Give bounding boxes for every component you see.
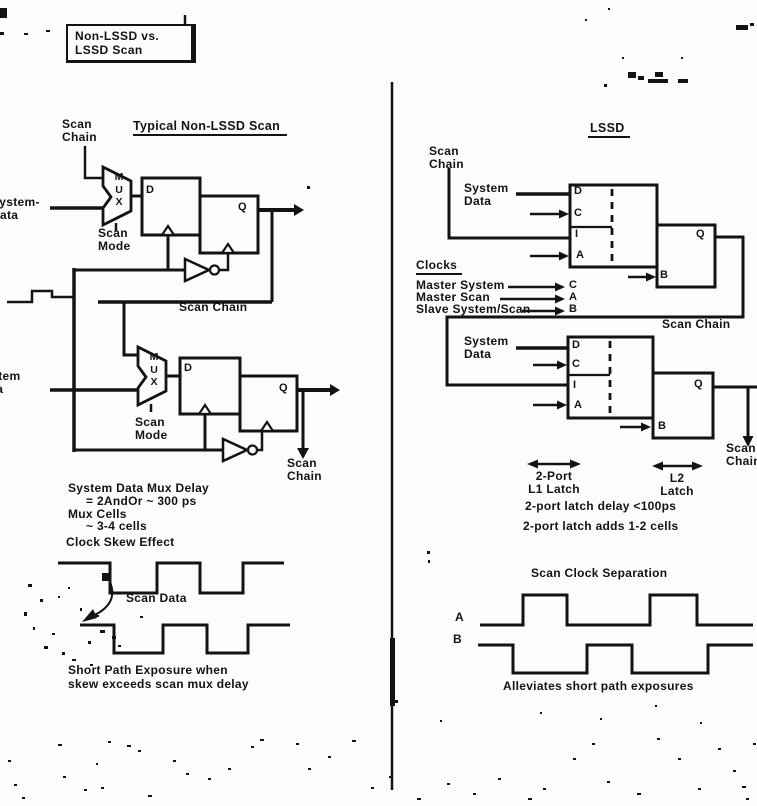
latch4-q-port: Q bbox=[694, 378, 703, 391]
clock-row-master-system-port: C bbox=[569, 279, 577, 292]
left-diagram-linework bbox=[7, 15, 340, 653]
right-diagram-linework bbox=[447, 168, 757, 673]
note-latch-delay: 2-port latch delay <100ps bbox=[525, 500, 676, 513]
scan-data-label: Scan Data bbox=[126, 592, 187, 605]
l1-latch-measure-label: 2-PortL1 Latch bbox=[517, 470, 591, 495]
l2-latch-measure-label: L2Latch bbox=[648, 472, 706, 497]
latch3-c-port: C bbox=[572, 358, 580, 371]
note-mux-delay-2: = 2AndOr ~ 300 ps bbox=[86, 495, 196, 508]
left-system-data-bottom-label: SystemData bbox=[0, 370, 21, 395]
clock-row-master-scan-port: A bbox=[569, 291, 577, 304]
wave-a-label: A bbox=[455, 611, 464, 624]
right-scan-chain-out-label: ScanChain bbox=[726, 442, 757, 467]
latch3-a-port: A bbox=[574, 399, 582, 412]
clock-row-slave-port: B bbox=[569, 303, 577, 316]
alleviates-note: Alleviates short path exposures bbox=[503, 680, 694, 693]
latch3-i-port: I bbox=[573, 379, 576, 392]
title-box: Non-LSSD vs.LSSD Scan bbox=[66, 24, 196, 63]
left-scan-mode-top-label: ScanMode bbox=[98, 227, 131, 252]
ff-top-q-port: Q bbox=[238, 201, 247, 214]
left-scan-chain-mid-label: Scan Chain bbox=[179, 301, 247, 314]
note-latch-cells: 2-port latch adds 1-2 cells bbox=[523, 520, 678, 533]
latch3-d-port: D bbox=[572, 339, 580, 352]
page-divider-line bbox=[390, 82, 395, 790]
left-scan-chain-top-label: ScanChain bbox=[62, 118, 97, 143]
clock-row-slave: Slave System/Scan bbox=[416, 303, 531, 316]
clocks-heading: Clocks bbox=[416, 259, 462, 275]
latch1-c-port: C bbox=[574, 207, 582, 220]
latch1-i-port: I bbox=[575, 228, 578, 241]
latch2-q-port: Q bbox=[696, 228, 705, 241]
right-heading: LSSD bbox=[588, 122, 630, 138]
latch1-a-port: A bbox=[576, 249, 584, 262]
note-mux-cells-2: ~ 3-4 cells bbox=[86, 520, 147, 533]
left-scan-mode-bottom-label: ScanMode bbox=[135, 416, 168, 441]
note-clock-skew: Clock Skew Effect bbox=[66, 536, 174, 549]
right-system-data-top-label: SystemData bbox=[464, 182, 509, 207]
ff-top-d-port: D bbox=[146, 184, 154, 197]
right-scan-chain-mid-label: Scan Chain bbox=[662, 318, 730, 331]
wave-b-label: B bbox=[453, 633, 462, 646]
left-scan-chain-out-label: ScanChain bbox=[287, 457, 322, 482]
title-line-2: LSSD Scan bbox=[75, 43, 187, 57]
right-system-data-bottom-label: SystemData bbox=[464, 335, 509, 360]
latch4-b-port: B bbox=[658, 420, 666, 433]
right-scan-chain-top-label: ScanChain bbox=[429, 145, 464, 170]
ff-bottom-q-port: Q bbox=[279, 382, 288, 395]
title-line-1: Non-LSSD vs. bbox=[75, 29, 187, 43]
mux-top-letters: MUX bbox=[108, 171, 130, 209]
clock-separation-heading: Scan Clock Separation bbox=[531, 567, 667, 580]
latch1-d-port: D bbox=[574, 185, 582, 198]
latch2-b-port: B bbox=[660, 269, 668, 282]
ff-bottom-d-port: D bbox=[184, 362, 192, 375]
note-mux-delay-1: System Data Mux Delay bbox=[68, 482, 209, 495]
left-system-data-top-label: System-Data bbox=[0, 196, 40, 221]
scanned-page: Non-LSSD vs.LSSD Scan Typical Non-LSSD S… bbox=[0, 0, 757, 806]
short-path-note: Short Path Exposure whenskew exceeds sca… bbox=[68, 664, 249, 691]
left-heading: Typical Non-LSSD Scan bbox=[133, 120, 287, 136]
mux-bottom-letters: MUX bbox=[143, 351, 165, 389]
